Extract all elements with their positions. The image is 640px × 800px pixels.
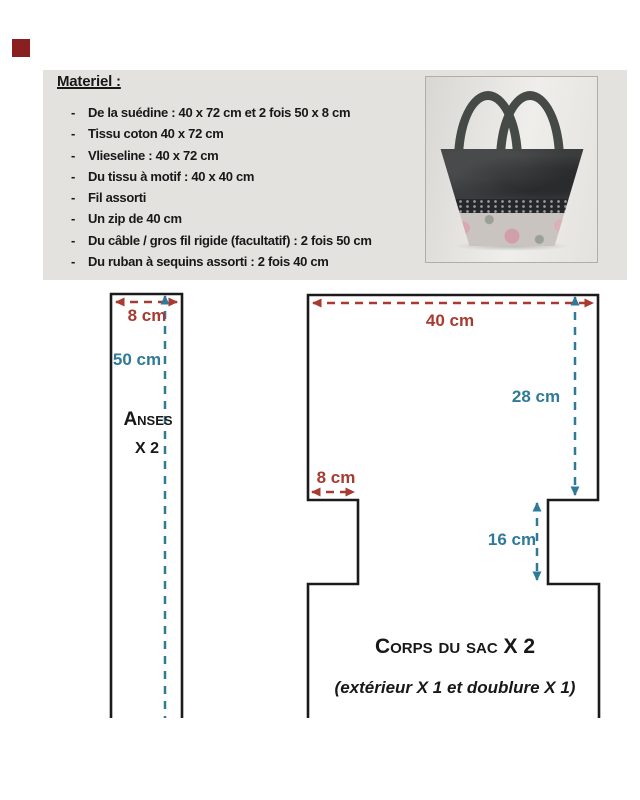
corps-notch-width-label: 8 cm xyxy=(317,468,356,488)
anses-length-label: 50 cm xyxy=(113,350,161,370)
corps-height-label: 28 cm xyxy=(512,387,560,407)
corps-title: Corps du sac X 2 xyxy=(375,635,535,659)
corps-subtitle: (extérieur X 1 et doublure X 1) xyxy=(335,678,576,698)
corps-notch-height-label: 16 cm xyxy=(488,530,536,550)
anses-title: Anses xyxy=(123,409,172,431)
anses-width-label: 8 cm xyxy=(128,306,167,326)
corps-width-label: 40 cm xyxy=(426,311,474,331)
anses-count: X 2 xyxy=(135,440,159,458)
page: Materiel : -De la suédine : 40 x 72 cm e… xyxy=(0,0,640,800)
